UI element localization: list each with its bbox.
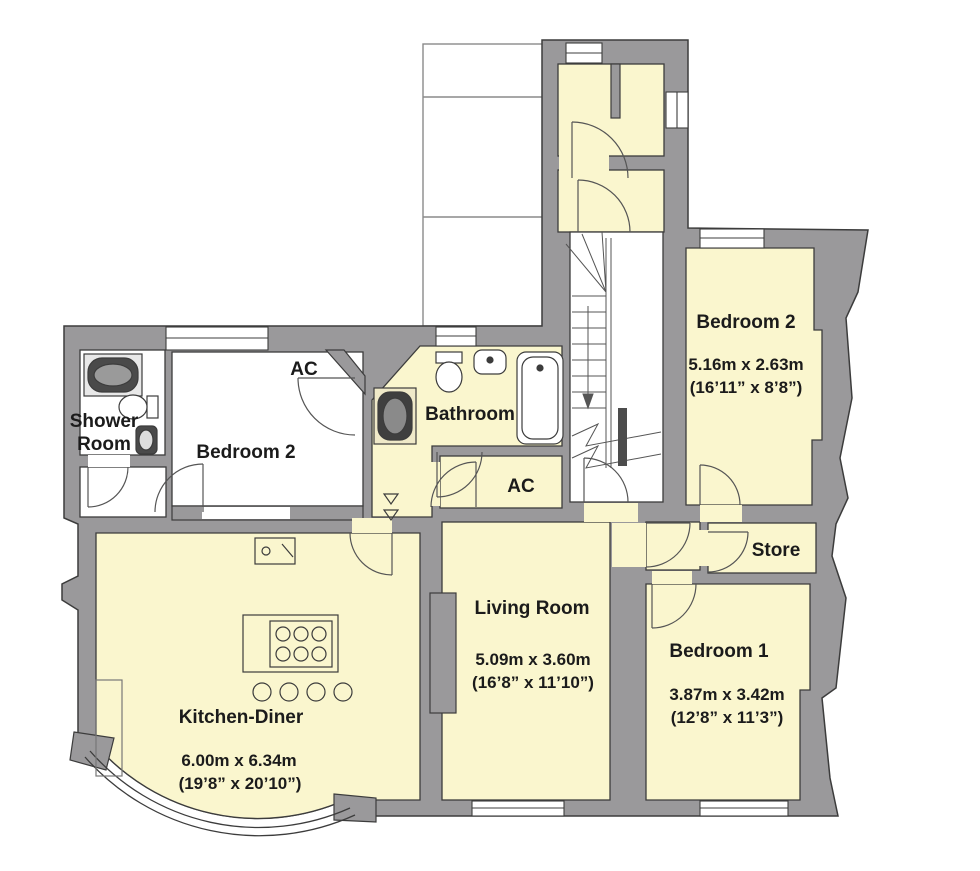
room-bedroom2-right [686, 248, 822, 505]
door-gap-entry [559, 155, 609, 171]
toilet-tank-icon [436, 352, 462, 363]
label-shower-room-1: Shower [70, 411, 139, 432]
wall-entry-stub [611, 64, 620, 118]
label-kitchen-diner: Kitchen-Diner [179, 707, 304, 728]
label-bedroom2-right: Bedroom 2 [696, 312, 795, 333]
bay-pier-right [334, 794, 376, 822]
door-gap-shower [88, 455, 130, 467]
label-store: Store [752, 540, 801, 561]
window-entry-top [566, 43, 602, 63]
size-bedroom1-ft: (12’8” x 11’3”) [671, 708, 783, 727]
label-living-room: Living Room [474, 598, 589, 619]
size-bedroom2-right-m: 5.16m x 2.63m [688, 355, 803, 374]
label-ac-left: AC [290, 359, 318, 380]
window-mid-top [436, 327, 476, 346]
room-bedroom2-left [172, 352, 363, 506]
room-left-hall [80, 467, 166, 517]
door-gap-living [612, 523, 646, 567]
floorplan-page: Shower Room Bedroom 2 AC Bathroom AC Bed… [0, 0, 980, 871]
size-kitchen-diner-ft: (19’8” x 20’10”) [179, 774, 302, 793]
door-gap-bedroom1 [652, 571, 692, 584]
size-living-room-m: 5.09m x 3.60m [475, 650, 590, 669]
room-ac-inner [440, 456, 562, 508]
label-shower-room-2: Room [77, 434, 131, 455]
toilet-tank-icon [147, 396, 158, 418]
chimney-breast [430, 593, 456, 713]
label-bedroom1: Bedroom 1 [669, 641, 769, 662]
window-living-bottom [472, 801, 564, 816]
window-bedroom1-bottom [700, 801, 788, 816]
door-gap-bedroom2l [202, 507, 290, 519]
door-gap-stairs [584, 503, 638, 522]
label-ac-inner: AC [507, 476, 535, 497]
toilet-icon [436, 362, 462, 392]
door-gap-bedroom2r [700, 505, 742, 522]
label-bathroom: Bathroom [425, 404, 515, 425]
door-gap-store [698, 530, 710, 566]
label-bedroom2-left: Bedroom 2 [196, 442, 295, 463]
size-kitchen-diner-m: 6.00m x 6.34m [181, 751, 296, 770]
size-living-room-ft: (16’8” x 11’10”) [472, 673, 594, 692]
size-bedroom2-right-ft: (16’11” x 8’8”) [690, 378, 802, 397]
room-hall [646, 522, 700, 570]
door-gap-kitchen [352, 518, 392, 533]
stairs-newel [618, 408, 627, 466]
window-left-top [166, 327, 268, 350]
floorplan-svg: Shower Room Bedroom 2 AC Bathroom AC Bed… [0, 0, 980, 871]
window-entry-right [666, 92, 688, 128]
room-entry-mid [558, 170, 664, 232]
window-bedroom2r-top [700, 229, 764, 248]
size-bedroom1-m: 3.87m x 3.42m [669, 685, 784, 704]
adjoining-structure-outline [423, 44, 543, 326]
